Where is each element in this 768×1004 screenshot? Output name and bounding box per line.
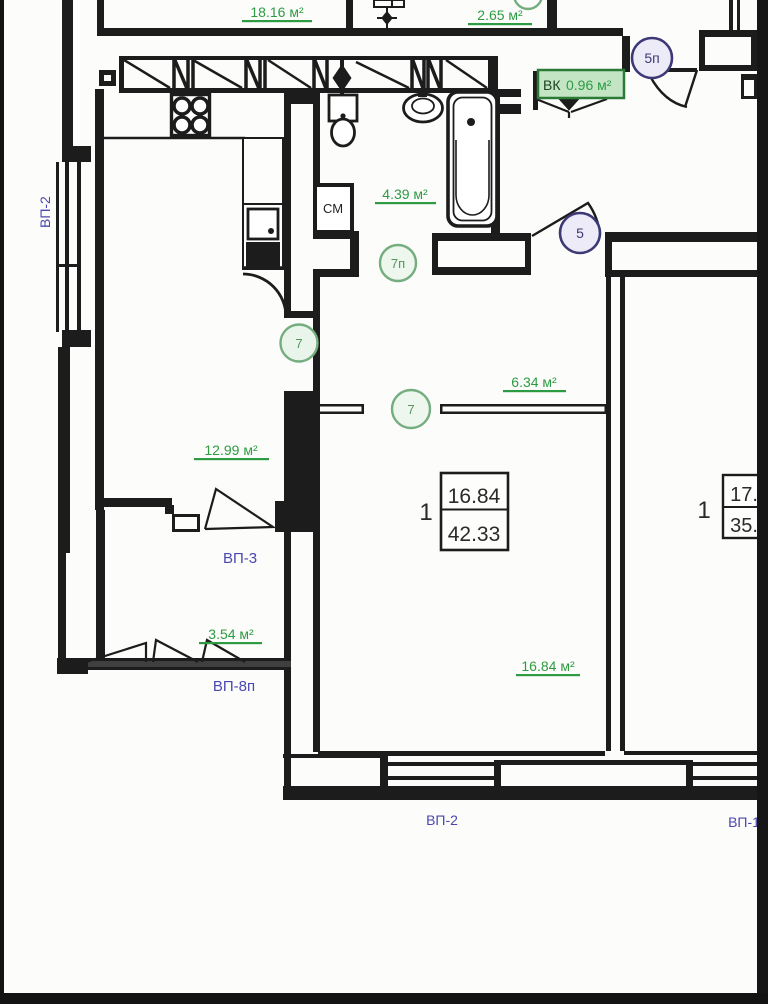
svg-text:7: 7 xyxy=(407,402,414,417)
svg-text:ВП-8п: ВП-8п xyxy=(213,678,255,695)
svg-text:6.34 м²: 6.34 м² xyxy=(511,374,557,390)
svg-text:1: 1 xyxy=(697,497,710,524)
svg-text:16.84: 16.84 xyxy=(448,485,501,508)
svg-text:5п: 5п xyxy=(644,50,659,66)
svg-text:ВК: ВК xyxy=(543,77,561,93)
svg-text:4.39 м²: 4.39 м² xyxy=(382,186,428,202)
svg-text:7: 7 xyxy=(295,336,302,351)
svg-text:ВП-1: ВП-1 xyxy=(728,814,760,830)
svg-text:ВП-2: ВП-2 xyxy=(426,812,458,828)
svg-text:1: 1 xyxy=(419,499,432,526)
svg-text:16.84 м²: 16.84 м² xyxy=(521,658,575,674)
svg-text:17.: 17. xyxy=(730,484,758,506)
svg-text:СМ: СМ xyxy=(323,201,343,216)
svg-text:3.54 м²: 3.54 м² xyxy=(208,626,254,642)
svg-text:18.16 м²: 18.16 м² xyxy=(250,4,304,20)
svg-text:42.33: 42.33 xyxy=(448,523,501,546)
svg-text:2.65 м²: 2.65 м² xyxy=(477,7,523,23)
svg-text:5: 5 xyxy=(576,225,584,241)
svg-text:7п: 7п xyxy=(391,256,405,271)
svg-text:0.96 м²: 0.96 м² xyxy=(566,77,612,93)
svg-text:12.99 м²: 12.99 м² xyxy=(204,442,258,458)
svg-text:35.: 35. xyxy=(730,515,758,537)
svg-text:ВП-2: ВП-2 xyxy=(37,196,53,228)
svg-text:ВП-3: ВП-3 xyxy=(223,550,257,567)
